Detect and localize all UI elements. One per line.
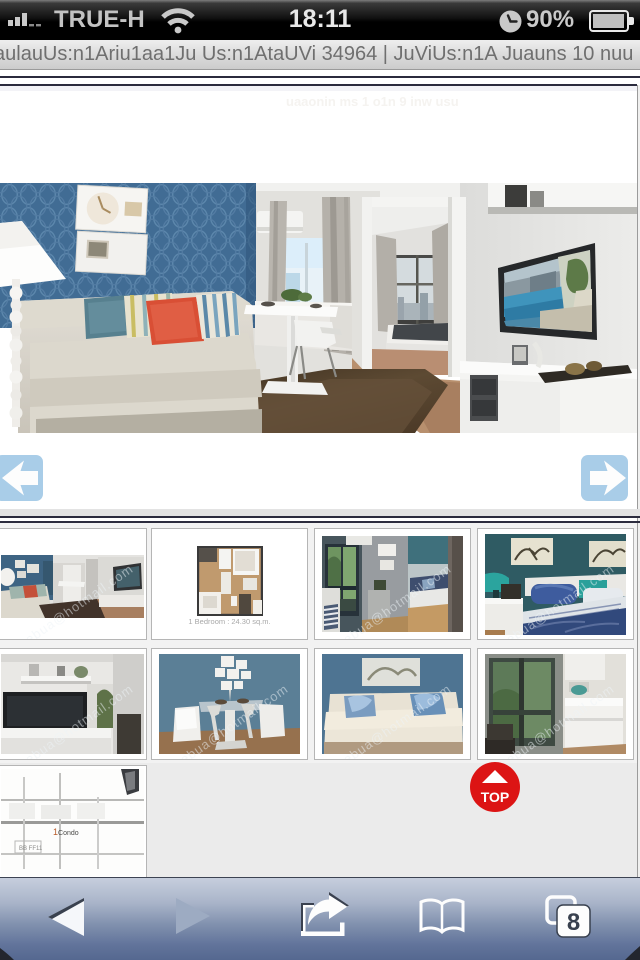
svg-text:BB FF11: BB FF11	[19, 846, 43, 852]
svg-text:8: 8	[567, 909, 580, 936]
svg-text:TOP: TOP	[481, 789, 510, 805]
